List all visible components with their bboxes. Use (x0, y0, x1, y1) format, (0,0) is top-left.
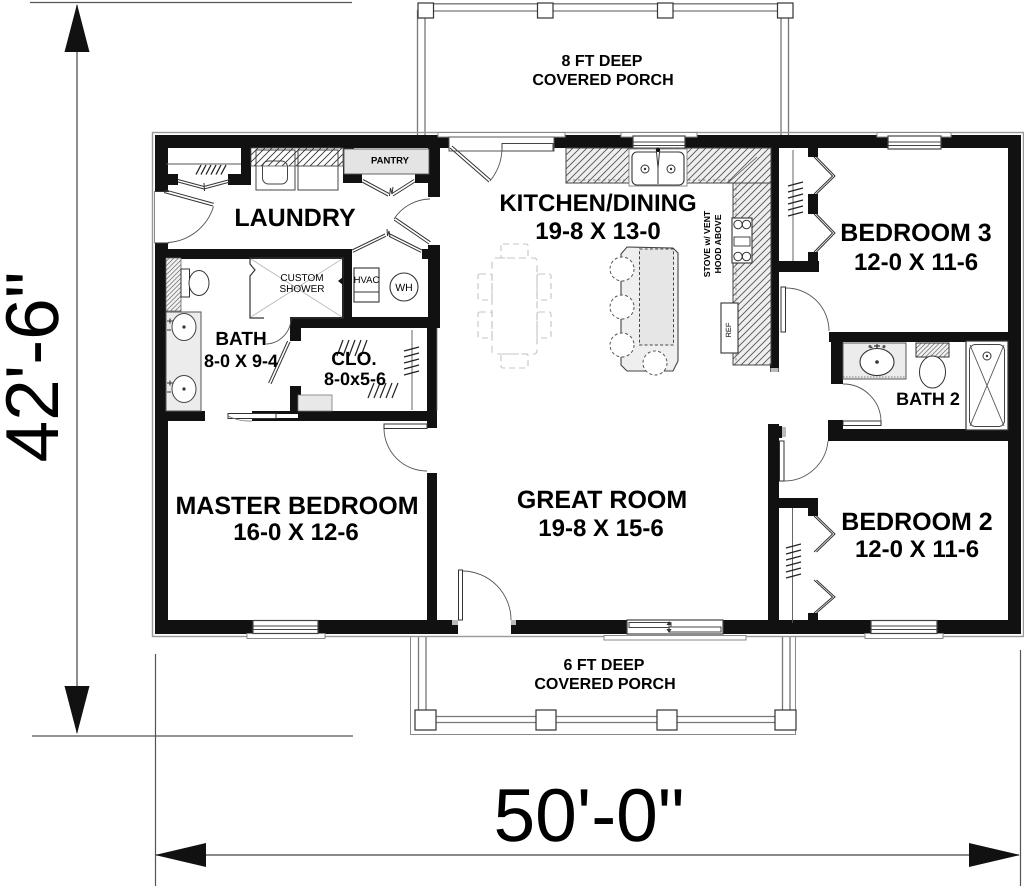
svg-text:BEDROOM 2: BEDROOM 2 (841, 508, 992, 536)
svg-text:BEDROOM 3: BEDROOM 3 (840, 219, 991, 247)
svg-text:LAUNDRY: LAUNDRY (234, 204, 356, 232)
svg-text:BATH 2: BATH 2 (896, 389, 960, 409)
svg-text:CLO.: CLO. (331, 349, 376, 370)
svg-text:50'-0": 50'-0" (493, 773, 684, 857)
svg-text:19-8 X 13-0: 19-8 X 13-0 (535, 218, 660, 245)
svg-text:8-0x5-6: 8-0x5-6 (324, 369, 386, 389)
svg-text:19-8 X 15-6: 19-8 X 15-6 (538, 515, 663, 542)
svg-text:COVERED PORCH: COVERED PORCH (532, 72, 673, 89)
svg-text:12-0 X 11-6: 12-0 X 11-6 (855, 536, 979, 563)
svg-text:WH: WH (395, 282, 413, 294)
svg-text:PANTRY: PANTRY (371, 156, 410, 167)
svg-text:HVAC: HVAC (354, 275, 380, 286)
svg-text:12-0 X 11-6: 12-0 X 11-6 (854, 249, 978, 276)
svg-text:8-0 X 9-4: 8-0 X 9-4 (204, 351, 278, 371)
svg-text:8 FT DEEP: 8 FT DEEP (562, 53, 643, 70)
svg-text:6 FT DEEP: 6 FT DEEP (564, 657, 645, 674)
svg-text:16-0 X 12-6: 16-0 X 12-6 (233, 519, 358, 546)
svg-text:CUSTOM: CUSTOM (280, 273, 323, 284)
svg-text:KITCHEN/DINING: KITCHEN/DINING (499, 190, 696, 217)
svg-text:HOOD ABOVE: HOOD ABOVE (713, 214, 723, 273)
svg-text:STOVE w/ VENT: STOVE w/ VENT (702, 210, 712, 277)
svg-text:REF: REF (724, 322, 733, 337)
svg-text:42'-6": 42'-6" (0, 271, 74, 462)
svg-text:GREAT ROOM: GREAT ROOM (517, 486, 687, 514)
svg-text:SHOWER: SHOWER (280, 284, 325, 295)
svg-text:COVERED PORCH: COVERED PORCH (534, 676, 675, 693)
svg-text:BATH: BATH (215, 329, 266, 350)
svg-text:MASTER BEDROOM: MASTER BEDROOM (175, 492, 418, 520)
